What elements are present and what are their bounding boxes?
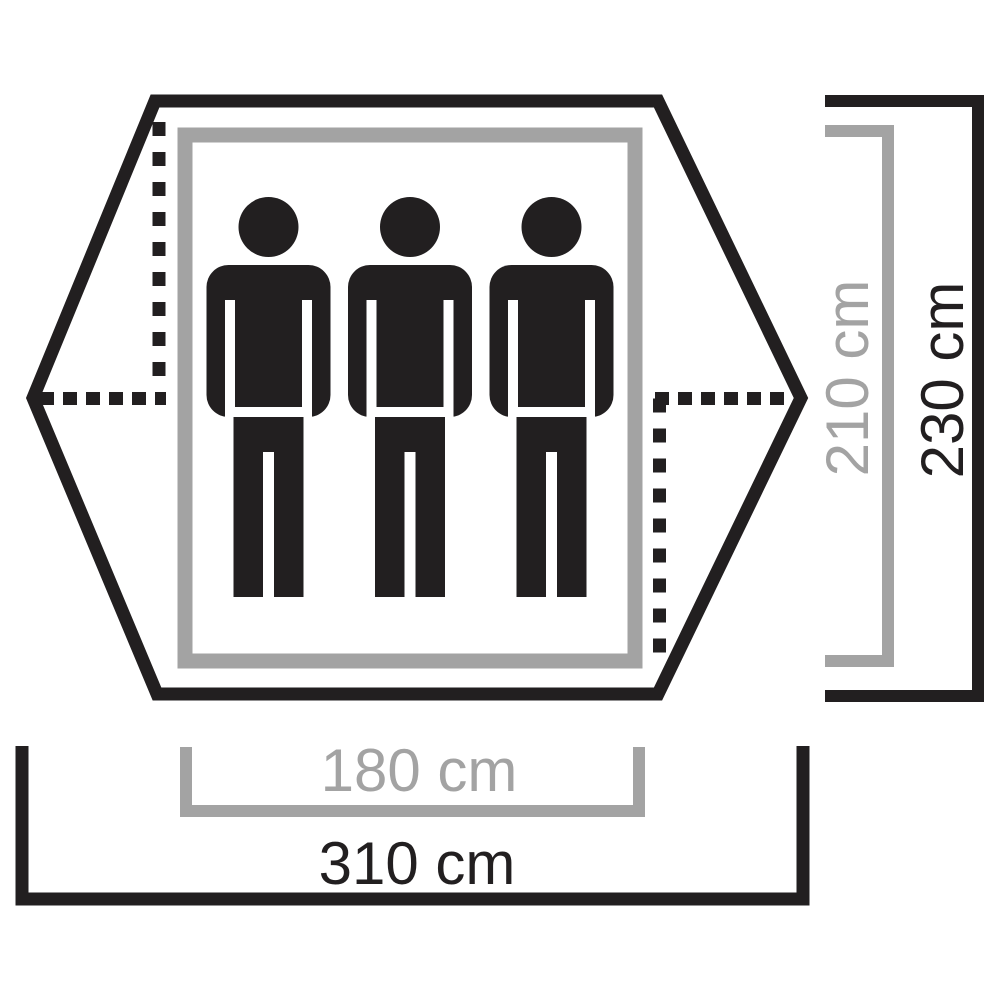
- person-icon: [490, 197, 614, 597]
- tent-dimensions-diagram: 210 cm 230 cm 180 cm 310 cm: [0, 0, 1000, 1000]
- outer-depth-label: 230 cm: [909, 282, 976, 479]
- diagram-svg: 210 cm 230 cm 180 cm 310 cm: [0, 0, 1000, 1000]
- outer-width-label: 310 cm: [319, 830, 516, 897]
- person-icon: [348, 197, 472, 597]
- inner-width-label: 180 cm: [321, 737, 518, 804]
- inner-depth-label: 210 cm: [814, 280, 881, 477]
- person-icon: [207, 197, 331, 597]
